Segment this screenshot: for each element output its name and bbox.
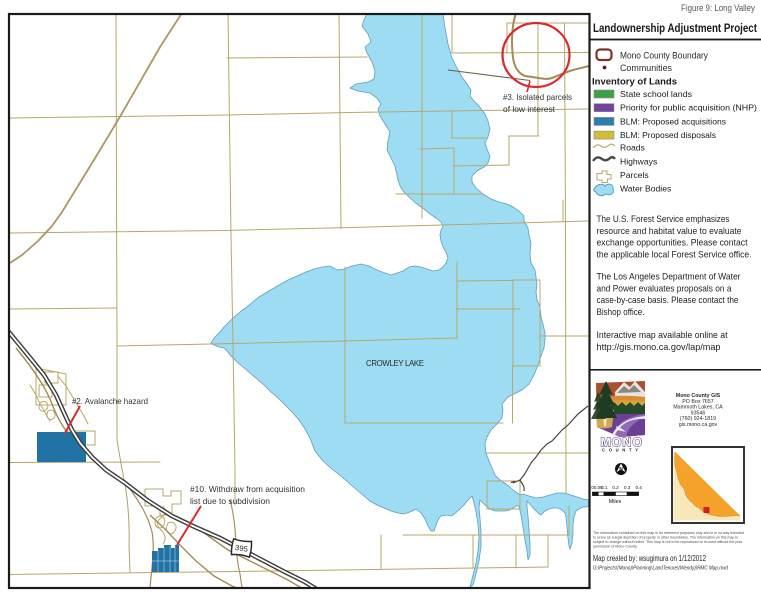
svg-text:of low interest: of low interest — [503, 104, 556, 114]
svg-text:COUNTY: COUNTY — [602, 448, 641, 453]
svg-text:case-by-case basis. Please con: case-by-case basis. Please contact the — [597, 295, 739, 305]
svg-text:gis.mono.ca.gov: gis.mono.ca.gov — [679, 422, 718, 428]
svg-text:#3. Isolated parcels: #3. Isolated parcels — [503, 92, 572, 102]
svg-text:Landownership Adjustment Proje: Landownership Adjustment Project — [593, 21, 757, 35]
svg-text:Mono County Boundary: Mono County Boundary — [620, 51, 708, 61]
svg-text:The information contained on t: The information contained on this map is… — [593, 531, 744, 535]
svg-text:Map created by: wsugimura on 1: Map created by: wsugimura on 1/12/2012 — [593, 554, 706, 563]
svg-text:#10. Withdraw from acquisition: #10. Withdraw from acquisition — [190, 484, 305, 494]
svg-text:Communities: Communities — [620, 63, 672, 73]
svg-text:BLM: Proposed disposals: BLM: Proposed disposals — [620, 130, 716, 140]
svg-text:and Power evaluates proposals: and Power evaluates proposals on a — [597, 283, 733, 293]
svg-text:Inventory of Lands: Inventory of Lands — [592, 77, 677, 88]
svg-text:permission of Mono County.: permission of Mono County. — [593, 545, 637, 549]
svg-text:resource and habitat value to: resource and habitat value to evaluate — [597, 226, 742, 236]
svg-text:G:\Projects\(Mono)\Planning\La: G:\Projects\(Mono)\Planning\LandTenure\(… — [593, 566, 729, 572]
svg-text:to serve as a legal depiction: to serve as a legal depiction of propert… — [593, 536, 738, 540]
svg-text:The U.S. Forest Service emphas: The U.S. Forest Service emphasizes — [597, 214, 730, 224]
svg-text:subject to change without noti: subject to change without notice. This m… — [593, 540, 743, 544]
svg-text:http://gis.mono.ca.gov/lap/map: http://gis.mono.ca.gov/lap/map — [597, 342, 721, 352]
svg-text:exchange opportunities. Please: exchange opportunities. Please contact — [597, 238, 748, 248]
svg-text:list due to subdivision: list due to subdivision — [190, 496, 270, 506]
svg-text:State school lands: State school lands — [620, 89, 692, 99]
svg-text:Water Bodies: Water Bodies — [620, 184, 671, 194]
svg-text:#2. Avalanche hazard: #2. Avalanche hazard — [72, 396, 148, 406]
svg-text:395: 395 — [234, 543, 248, 554]
svg-text:Parcels: Parcels — [620, 170, 649, 180]
svg-text:N: N — [619, 467, 623, 473]
svg-text:the applicable local Forest Se: the applicable local Forest Service offi… — [597, 249, 752, 259]
svg-text:0.1: 0.1 — [601, 485, 608, 490]
svg-text:Bishop office.: Bishop office. — [597, 307, 645, 317]
svg-text:BLM: Proposed acquisitions: BLM: Proposed acquisitions — [620, 116, 726, 126]
svg-text:The Los Angeles Department of: The Los Angeles Department of Water — [597, 272, 741, 282]
svg-text:Highways: Highways — [620, 157, 657, 167]
svg-text:0.4: 0.4 — [635, 485, 642, 490]
svg-text:CROWLEY LAKE: CROWLEY LAKE — [366, 359, 424, 368]
svg-text:0.2: 0.2 — [612, 485, 619, 490]
svg-text:Roads: Roads — [620, 143, 645, 153]
svg-text:0.3: 0.3 — [624, 485, 631, 490]
svg-text:Interactive map available onli: Interactive map available online at — [597, 330, 728, 340]
svg-text:Priority for public acquisitio: Priority for public acquisition (NHP) — [620, 103, 757, 113]
svg-text:Figure 9: Long Valley: Figure 9: Long Valley — [681, 3, 755, 13]
svg-text:Miles: Miles — [609, 499, 622, 505]
